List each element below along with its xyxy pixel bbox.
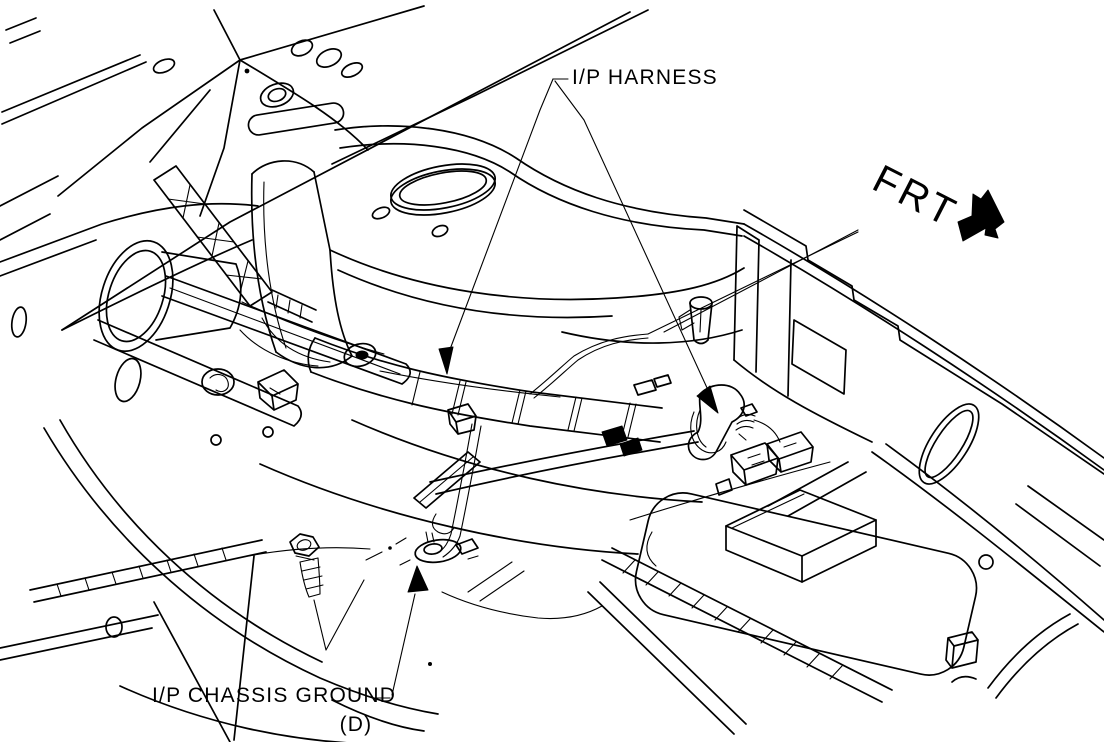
strut-channel [252, 161, 352, 368]
chassis-ground-code: (D) [340, 713, 373, 736]
frt-label: FRT [866, 157, 965, 237]
figure-canvas: I/P HARNESS I/P CHASSIS GROUND (D) FRT [0, 0, 1104, 742]
chassis-ground-label: I/P CHASSIS GROUND [152, 684, 396, 707]
shelf-panel [330, 126, 744, 343]
callout-chassis-ground: I/P CHASSIS GROUND (D) [152, 566, 428, 736]
ip-harness-label: I/P HARNESS [572, 66, 718, 89]
harness-arrowhead-left [439, 347, 453, 374]
cowl-structure [0, 6, 648, 338]
right-sill-panel [664, 210, 1104, 632]
callout-ip-harness: I/P HARNESS [439, 66, 718, 413]
frt-direction-indicator: FRT [866, 157, 1004, 241]
ground-wire [435, 232, 858, 557]
module-box [726, 490, 876, 582]
ip-harness-ground-illustration: I/P HARNESS I/P CHASSIS GROUND (D) FRT [0, 0, 1104, 742]
ip-harness-conduit [154, 166, 671, 442]
ground-bolt [290, 534, 406, 650]
ground-arrowhead [408, 566, 428, 592]
ground-terminal [400, 452, 480, 565]
